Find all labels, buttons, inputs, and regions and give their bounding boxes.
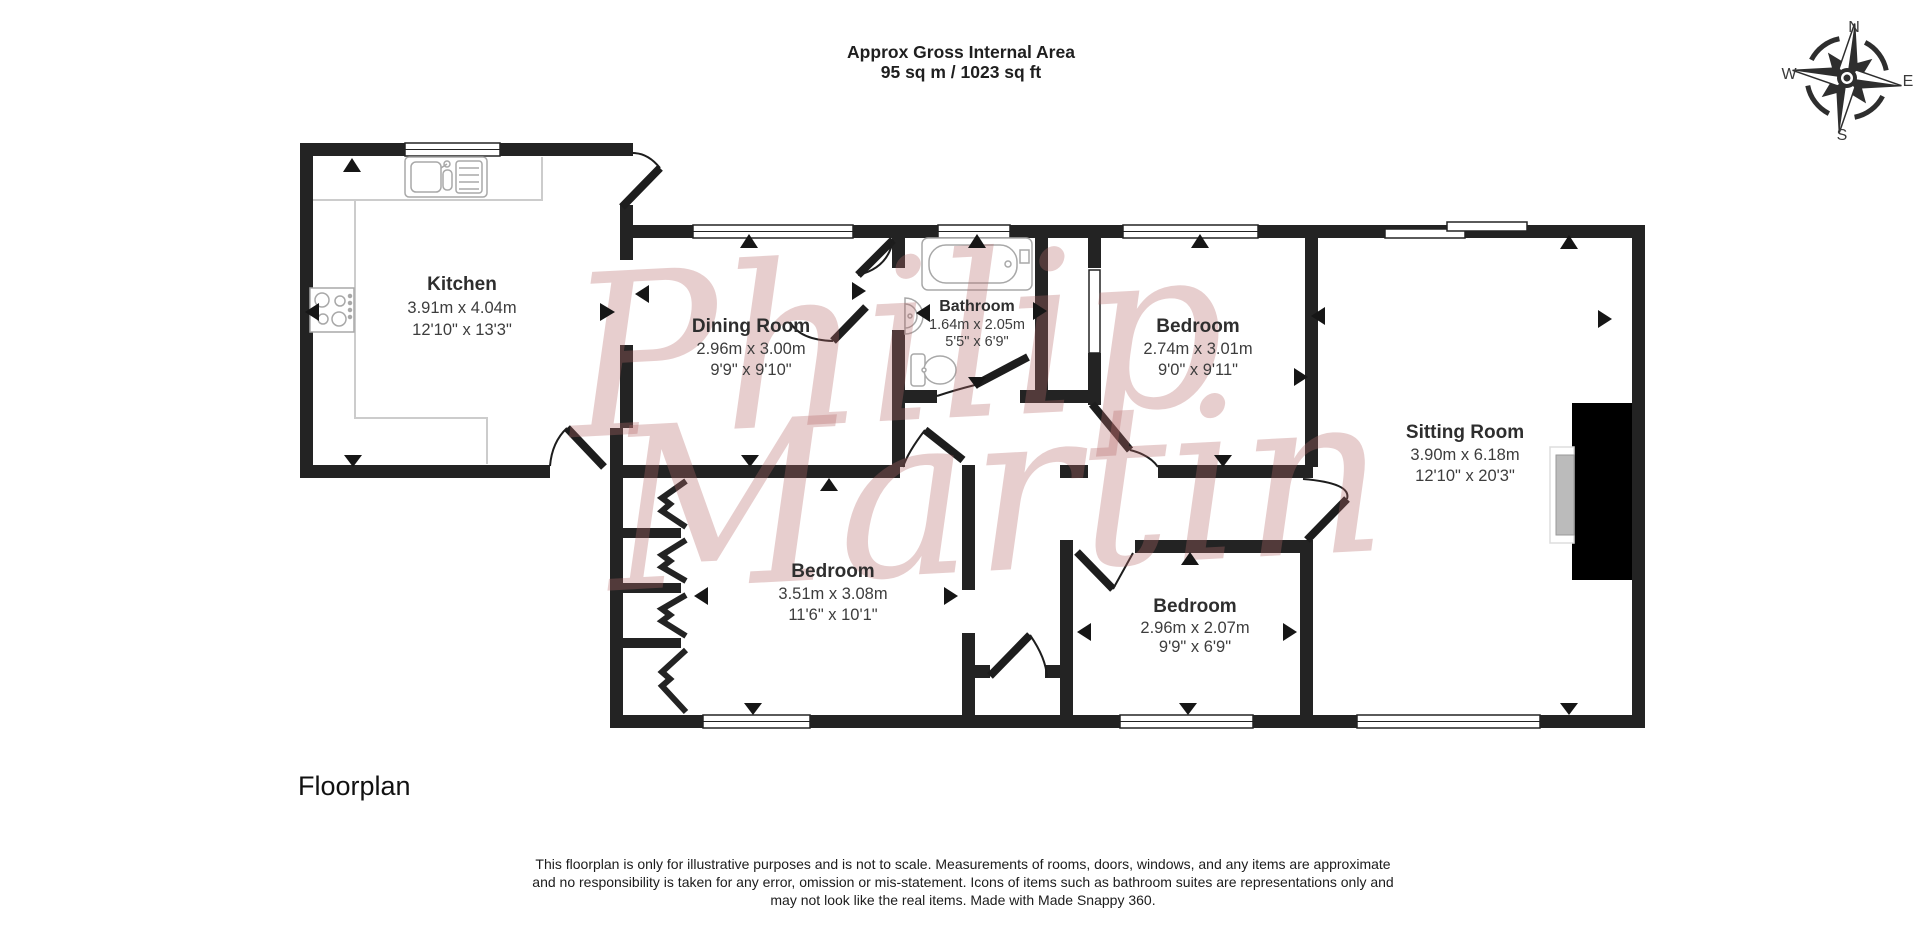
room-dim-metric: 2.74m x 3.01m xyxy=(1143,340,1252,358)
floorplan-caption: Floorplan xyxy=(298,771,411,801)
room-dim-imperial: 12'10" x 13'3" xyxy=(412,321,512,339)
fireplace-icon xyxy=(1550,447,1574,543)
compass-w: W xyxy=(1781,66,1797,83)
room-label-kitchen: Kitchen 3.91m x 4.04m 12'10" x 13'3" xyxy=(407,274,516,339)
compass-e: E xyxy=(1903,73,1914,90)
compass-icon: N E S W xyxy=(1781,16,1913,144)
room-name: Bedroom xyxy=(791,561,874,582)
room-dim-imperial: 5'5" x 6'9" xyxy=(945,334,1008,350)
room-name: Dining Room xyxy=(692,316,810,337)
area-title: Approx Gross Internal Area 95 sq m / 102… xyxy=(847,42,1075,82)
room-dim-metric: 3.90m x 6.18m xyxy=(1410,446,1519,464)
room-dim-imperial: 9'9" x 6'9" xyxy=(1159,638,1231,656)
area-title-line2: 95 sq m / 1023 sq ft xyxy=(881,62,1042,82)
room-dim-metric: 3.51m x 3.08m xyxy=(778,585,887,603)
room-label-bedroom-left: Bedroom 3.51m x 3.08m 11'6" x 10'1" xyxy=(778,561,887,624)
room-label-sitting: Sitting Room 3.90m x 6.18m 12'10" x 20'3… xyxy=(1406,422,1524,485)
room-dim-metric: 1.64m x 2.05m xyxy=(929,317,1025,333)
area-title-line1: Approx Gross Internal Area xyxy=(847,42,1075,62)
sink-icon xyxy=(405,157,487,197)
disclaimer-line1: This floorplan is only for illustrative … xyxy=(535,856,1390,872)
disclaimer-line3: may not look like the real items. Made w… xyxy=(770,892,1155,908)
room-label-bedroom-mid: Bedroom 2.96m x 2.07m 9'9" x 6'9" xyxy=(1140,596,1249,656)
room-dim-imperial: 12'10" x 20'3" xyxy=(1415,467,1515,485)
room-dim-metric: 2.96m x 3.00m xyxy=(696,340,805,358)
room-dim-imperial: 9'9" x 9'10" xyxy=(710,361,791,379)
compass-n: N xyxy=(1848,19,1860,36)
room-label-bedroom-top: Bedroom 2.74m x 3.01m 9'0" x 9'11" xyxy=(1143,316,1252,379)
watermark-line2: Martin xyxy=(596,342,1392,645)
room-dim-metric: 3.91m x 4.04m xyxy=(407,299,516,317)
floorplan-image: Philip Martin Kitchen 3.91m x 4.0 xyxy=(0,0,1920,931)
room-dim-metric: 2.96m x 2.07m xyxy=(1140,619,1249,637)
room-name: Bedroom xyxy=(1153,596,1236,617)
compass-s: S xyxy=(1837,127,1848,144)
room-dim-imperial: 11'6" x 10'1" xyxy=(788,606,877,624)
room-name: Sitting Room xyxy=(1406,422,1524,443)
watermark: Philip Martin xyxy=(557,195,1392,644)
room-dim-imperial: 9'0" x 9'11" xyxy=(1158,361,1238,379)
disclaimer: This floorplan is only for illustrative … xyxy=(532,856,1393,908)
disclaimer-line2: and no responsibility is taken for any e… xyxy=(532,874,1393,890)
room-name: Kitchen xyxy=(427,274,497,295)
room-name: Bedroom xyxy=(1156,316,1239,337)
room-name: Bathroom xyxy=(939,298,1015,315)
